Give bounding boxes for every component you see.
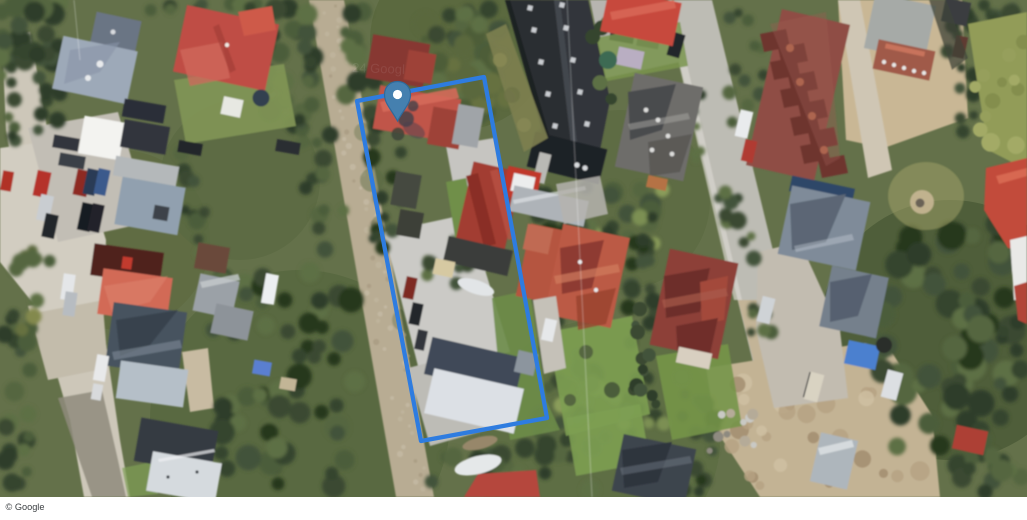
svg-text:24 Googl: 24 Googl: [352, 60, 405, 77]
svg-text:© Google: © Google: [6, 502, 45, 512]
